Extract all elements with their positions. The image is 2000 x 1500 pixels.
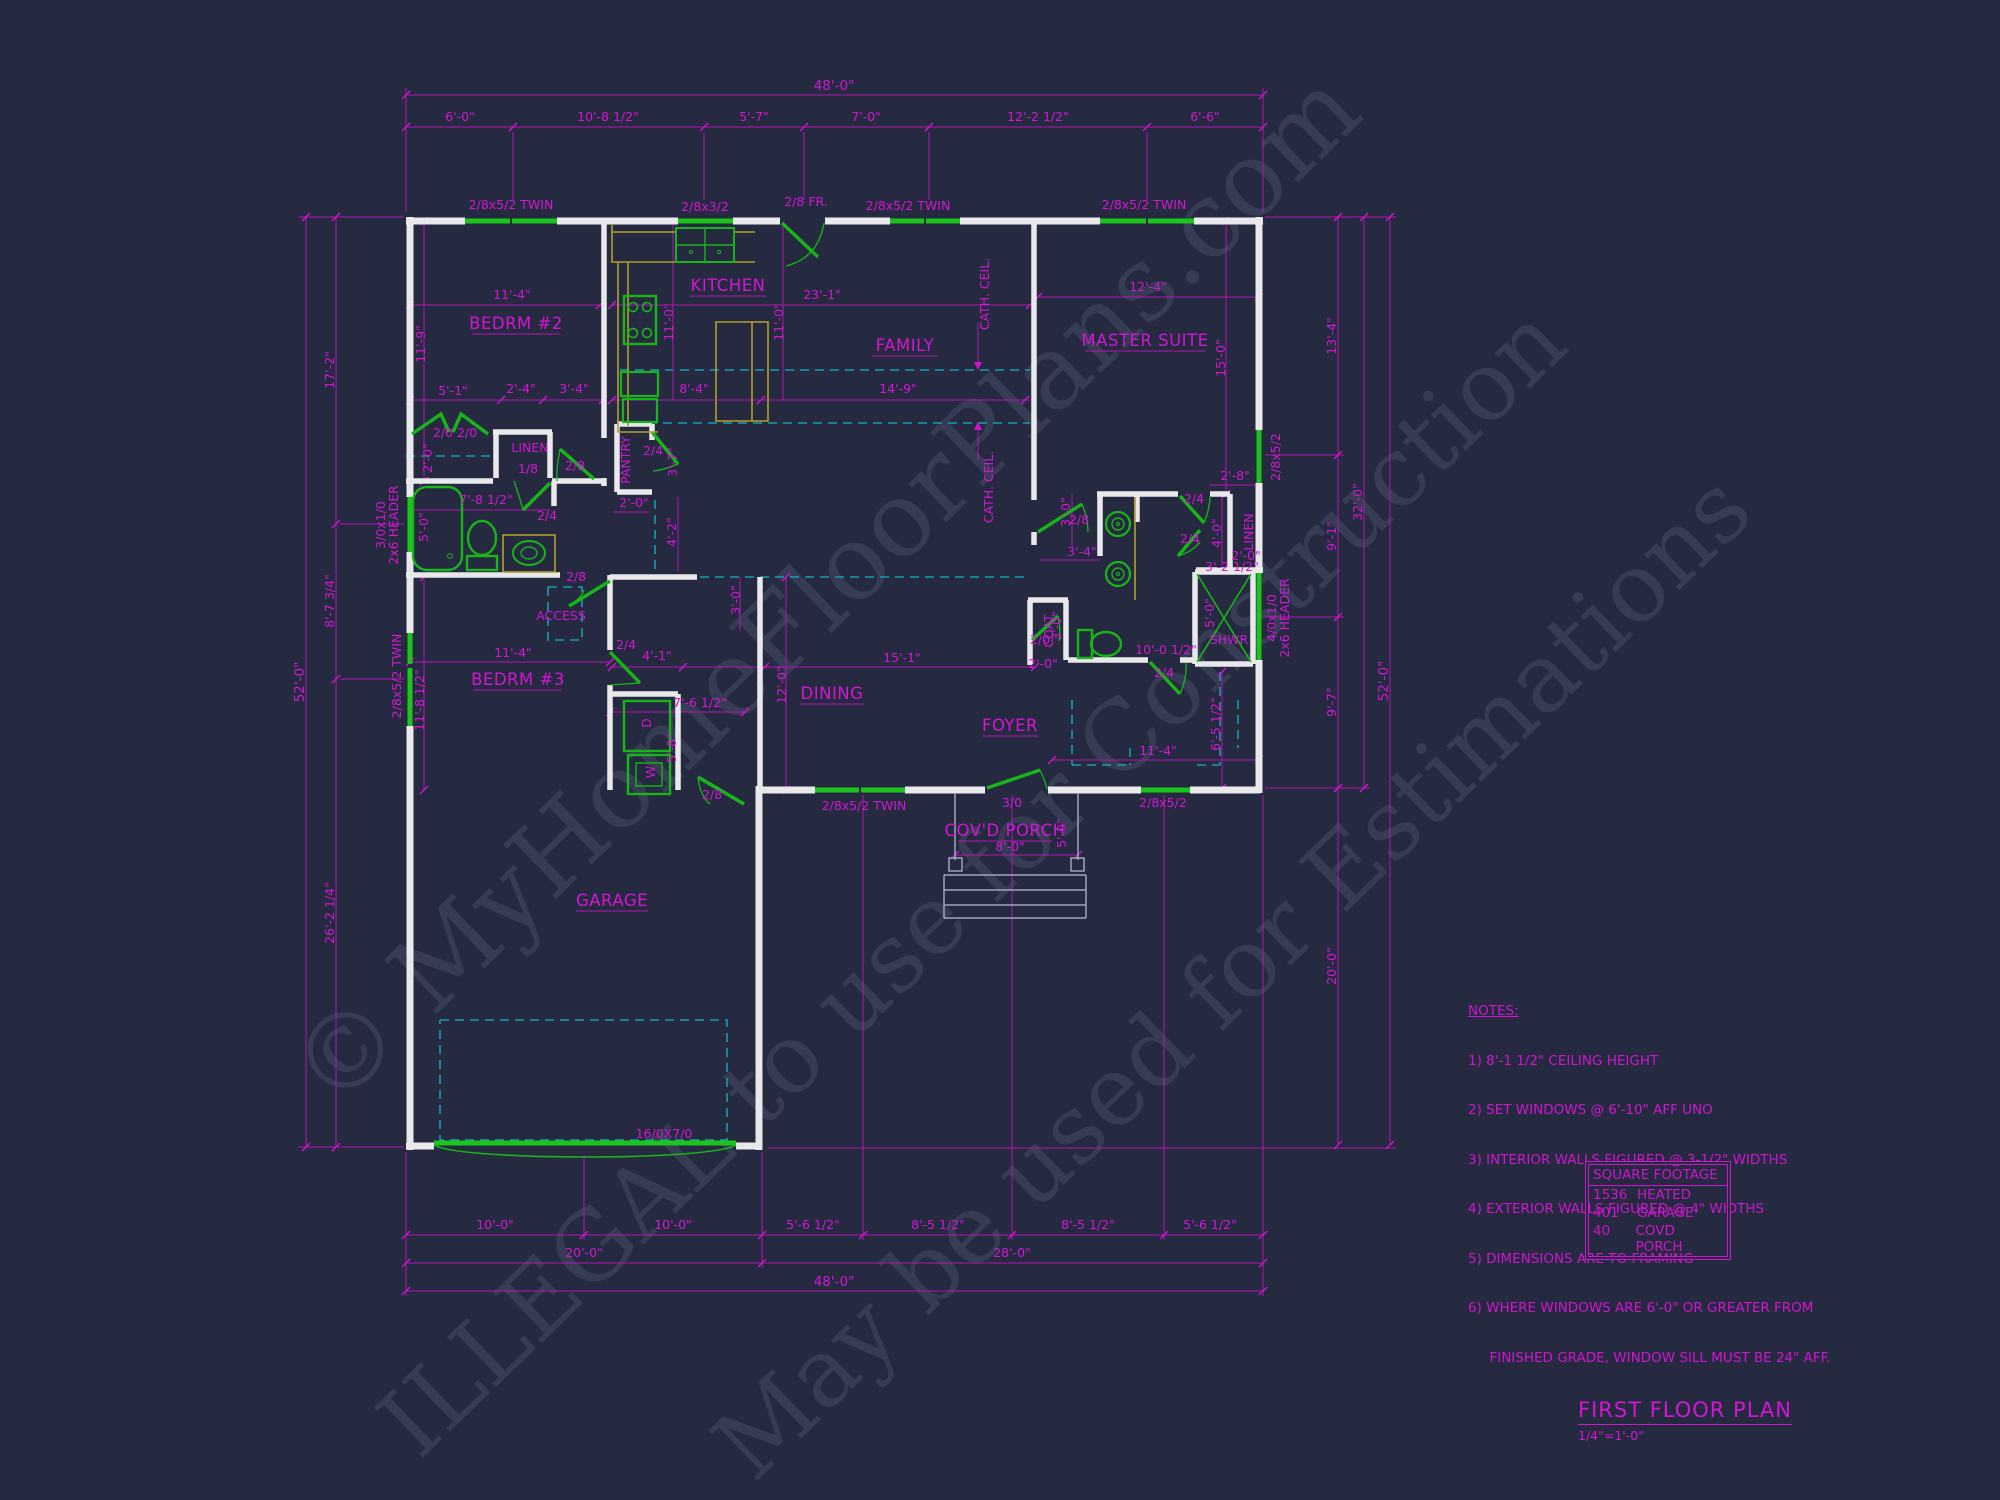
note-line: 1) 8'-1 1/2" CEILING HEIGHT (1468, 1053, 1831, 1070)
door-label-wc: 2/4 (1154, 665, 1174, 680)
room-bedrm2: BEDRM #2 (469, 314, 563, 333)
toilet-1 (468, 521, 496, 555)
idim-15-0: 15'-0" (1213, 339, 1228, 377)
win-label-left1b: 2x6 HEADER (386, 485, 401, 565)
dim-top-2: 10'-8 1/2" (577, 109, 639, 124)
win-label-top3: 2/8x5/2 TWIN (866, 198, 951, 213)
room-kitchen: KITCHEN (691, 276, 766, 295)
idim-11-4a: 11'-4" (493, 287, 531, 302)
idim-11-9: 11'-9" (413, 325, 428, 363)
cad-floorplan-viewport: © MyHomeFloorPlans.com ILLEGAL to use fo… (0, 0, 2000, 1500)
idim-3-2: 3'-2 1/2" (1205, 559, 1259, 574)
win-label-top1: 2/8x5/2 TWIN (469, 197, 554, 212)
win-label-top2: 2/8x3/2 (681, 199, 729, 214)
door-label-bath: 2/4 (537, 508, 557, 523)
dim-bot-5: 8'-5 1/2" (1061, 1217, 1115, 1232)
label-cath-ceil-2: CATH. CEIL. (981, 451, 996, 523)
dim-left-3: 26'-2 1/4" (322, 882, 337, 944)
idim-2-4: 2'-4" (506, 381, 536, 396)
dim-bot-8: 28'-0" (993, 1245, 1031, 1260)
win-label-left2: 2/8x5/2 TWIN (389, 634, 404, 719)
dim-top-1: 6'-0" (445, 109, 475, 124)
label-linen1: LINEN (511, 440, 548, 455)
win-label-bot2: 2/8x5/2 (1139, 795, 1187, 810)
sqft-value: 401 (1593, 1205, 1637, 1221)
note-line: 2) SET WINDOWS @ 6'-10" AFF UNO (1468, 1102, 1831, 1119)
master-sink-1 (1106, 512, 1130, 536)
idim-11-0a: 11'-0" (661, 303, 676, 341)
idim-11-8: 11'-8 1/2" (412, 669, 427, 731)
sqft-label: HEATED (1637, 1187, 1691, 1203)
dim-right-2: 9'-1" (1324, 521, 1339, 551)
idim-12-0: 12'-0" (774, 666, 789, 704)
dim-bot-4: 8'-5 1/2" (911, 1217, 965, 1232)
idim-11-4b: 11'-4" (494, 645, 532, 660)
dim-right-3: 9'-7" (1324, 687, 1339, 717)
sqft-value: 1536 (1593, 1187, 1637, 1203)
toilet-2 (1091, 632, 1121, 656)
sqft-row: 1536HEATED (1589, 1186, 1727, 1204)
idim-8-4: 8'-4" (679, 381, 709, 396)
door-label-pantry: 2/4 (643, 443, 663, 458)
garage-door-label: 16/0X7/0 (636, 1126, 693, 1141)
door-label-linen: 1/8 (518, 461, 538, 476)
note-line: FINISHED GRADE, WINDOW SILL MUST BE 24" … (1468, 1350, 1831, 1367)
idim-3-0c: 3'-0" (1049, 611, 1064, 641)
win-label-top4: 2/8x5/2 TWIN (1102, 197, 1187, 212)
dim-bot-1: 10'-0" (476, 1217, 514, 1232)
dim-top-3: 5'-7" (739, 109, 769, 124)
dim-left-total: 52'-0" (292, 662, 308, 703)
idim-5-0c: 5'-0" (1054, 818, 1069, 848)
idim-10-0: 10'-0 1/2" (1135, 642, 1197, 657)
idim-12-4: 12'-4" (1129, 279, 1167, 294)
dim-top-4: 7'-0" (851, 109, 881, 124)
win-label-right1: 2/8x5/2 (1268, 433, 1283, 481)
door-label-mbath2: 2/4 (1180, 531, 1200, 546)
idim-7-6: 7'-6 1/2" (673, 695, 727, 710)
room-bedrm3: BEDRM #3 (471, 670, 565, 689)
door-label-bifold: 2/0 2/0 (433, 425, 477, 440)
idim-3-0b: 3'-0" (1058, 497, 1073, 527)
dim-bot-6: 5'-6 1/2" (1183, 1217, 1237, 1232)
door-label-foyer: 3/0 (1002, 795, 1022, 810)
idim-7-8: 7'-8 1/2" (459, 492, 513, 507)
label-shwr: SHWR (1210, 632, 1249, 647)
door-label-mbath1: 2/4 (1184, 491, 1204, 506)
door-label-french: 2/8 FR. (784, 194, 828, 209)
idim-2-0b: 2'-0" (619, 495, 649, 510)
kitchen-fridge (621, 372, 658, 396)
room-foyer: FOYER (982, 716, 1038, 735)
idim-5-0b: 5'-0" (1202, 598, 1217, 628)
idim-2-0d: 2'-0" (1028, 656, 1058, 671)
idim-8-0: 8'-0" (995, 839, 1025, 854)
dim-top-total: 48'-0" (814, 78, 855, 94)
dim-bot-2: 10'-0" (654, 1217, 692, 1232)
idim-3-0a: 3'-0" (728, 585, 743, 615)
master-sink-2 (1106, 562, 1130, 586)
kitchen-casework (612, 225, 768, 432)
label-cath-ceil-1: CATH. CEIL. (977, 258, 992, 330)
idim-5-0a: 5'-0" (416, 512, 431, 542)
drawing-title: FIRST FLOOR PLAN (1578, 1398, 1792, 1425)
door-label-access: 2/8 (566, 569, 586, 584)
room-dining: DINING (801, 684, 864, 703)
square-footage-table: SQUARE FOOTAGE 1536HEATED 401GARAGE 40CO… (1588, 1164, 1728, 1257)
sqft-label: COVD PORCH (1635, 1223, 1723, 1255)
idim-11-4c: 11'-4" (1139, 743, 1177, 758)
dim-top-5: 12'-2 1/2" (1007, 109, 1069, 124)
dim-bot-7: 20'-0" (565, 1245, 603, 1260)
dim-left-1: 17'-2" (322, 351, 337, 389)
drawing-scale: 1/4"=1'-0" (1578, 1428, 1792, 1443)
door-label-coat: 2/0 (1030, 632, 1050, 647)
label-linen2: LINEN (1241, 513, 1256, 550)
idim-6-5: 6'-5 1/2" (1208, 697, 1223, 751)
label-access: ACCESS (536, 608, 586, 623)
notes-heading: NOTES: (1468, 1003, 1831, 1020)
dim-right-total: 52'-0" (1376, 661, 1392, 702)
sqft-row: 401GARAGE (1589, 1204, 1727, 1222)
dim-right-4: 20'-0" (1324, 947, 1339, 985)
sqft-row: 40COVD PORCH (1589, 1222, 1727, 1256)
dim-left-2: 8'-7 3/4" (322, 574, 337, 628)
door-label-hall: 2/8 (565, 458, 585, 473)
idim-2-8: 2'-8" (1220, 468, 1250, 483)
idim-4-0: 4'-0" (1209, 518, 1224, 548)
sqft-value: 40 (1593, 1223, 1635, 1255)
idim-3-7: 3'-7" (665, 447, 680, 477)
note-line: 6) WHERE WINDOWS ARE 6'-0" OR GREATER FR… (1468, 1300, 1831, 1317)
label-washer: W (643, 766, 658, 778)
room-family: FAMILY (876, 336, 935, 355)
idim-15-1: 15'-1" (883, 650, 921, 665)
dim-right-32: 32'-0" (1350, 483, 1365, 521)
idim-4-1: 4'-1" (642, 648, 672, 663)
idim-4-2: 4'-2" (664, 517, 679, 547)
door-label-bed3: 2/4 (616, 637, 636, 652)
idim-2-0a: 2'-0" (420, 443, 435, 473)
idim-5-1: 5'-1" (438, 383, 468, 398)
idim-3-4a: 3'-4" (559, 381, 589, 396)
sqft-label: GARAGE (1637, 1205, 1694, 1221)
idim-3-4b: 3'-4" (1067, 544, 1097, 559)
title-block: FIRST FLOOR PLAN 1/4"=1'-0" (1578, 1398, 1792, 1443)
door-label-laundry: 2/8 (702, 787, 722, 802)
dim-bot-9: 48'-0" (814, 1274, 855, 1290)
win-label-right2b: 2x6 HEADER (1277, 578, 1292, 658)
idim-5-8: 5'-8" (664, 733, 679, 763)
idim-11-0b: 11'-0" (771, 303, 786, 341)
sqft-header: SQUARE FOOTAGE (1589, 1165, 1727, 1186)
label-dryer: D (639, 718, 654, 728)
label-pantry: PANTRY (618, 436, 633, 484)
room-garage: GARAGE (576, 891, 648, 910)
idim-23-1: 23'-1" (803, 287, 841, 302)
dim-right-1: 13'-4" (1324, 317, 1339, 355)
dim-bot-3: 5'-6 1/2" (786, 1217, 840, 1232)
room-master-suite: MASTER SUITE (1081, 331, 1208, 350)
idim-14-9: 14'-9" (879, 381, 917, 396)
room-covd-porch: COV'D PORCH (945, 821, 1066, 840)
win-label-bot1: 2/8x5/2 TWIN (822, 798, 907, 813)
dim-top-6: 6'-6" (1190, 109, 1220, 124)
